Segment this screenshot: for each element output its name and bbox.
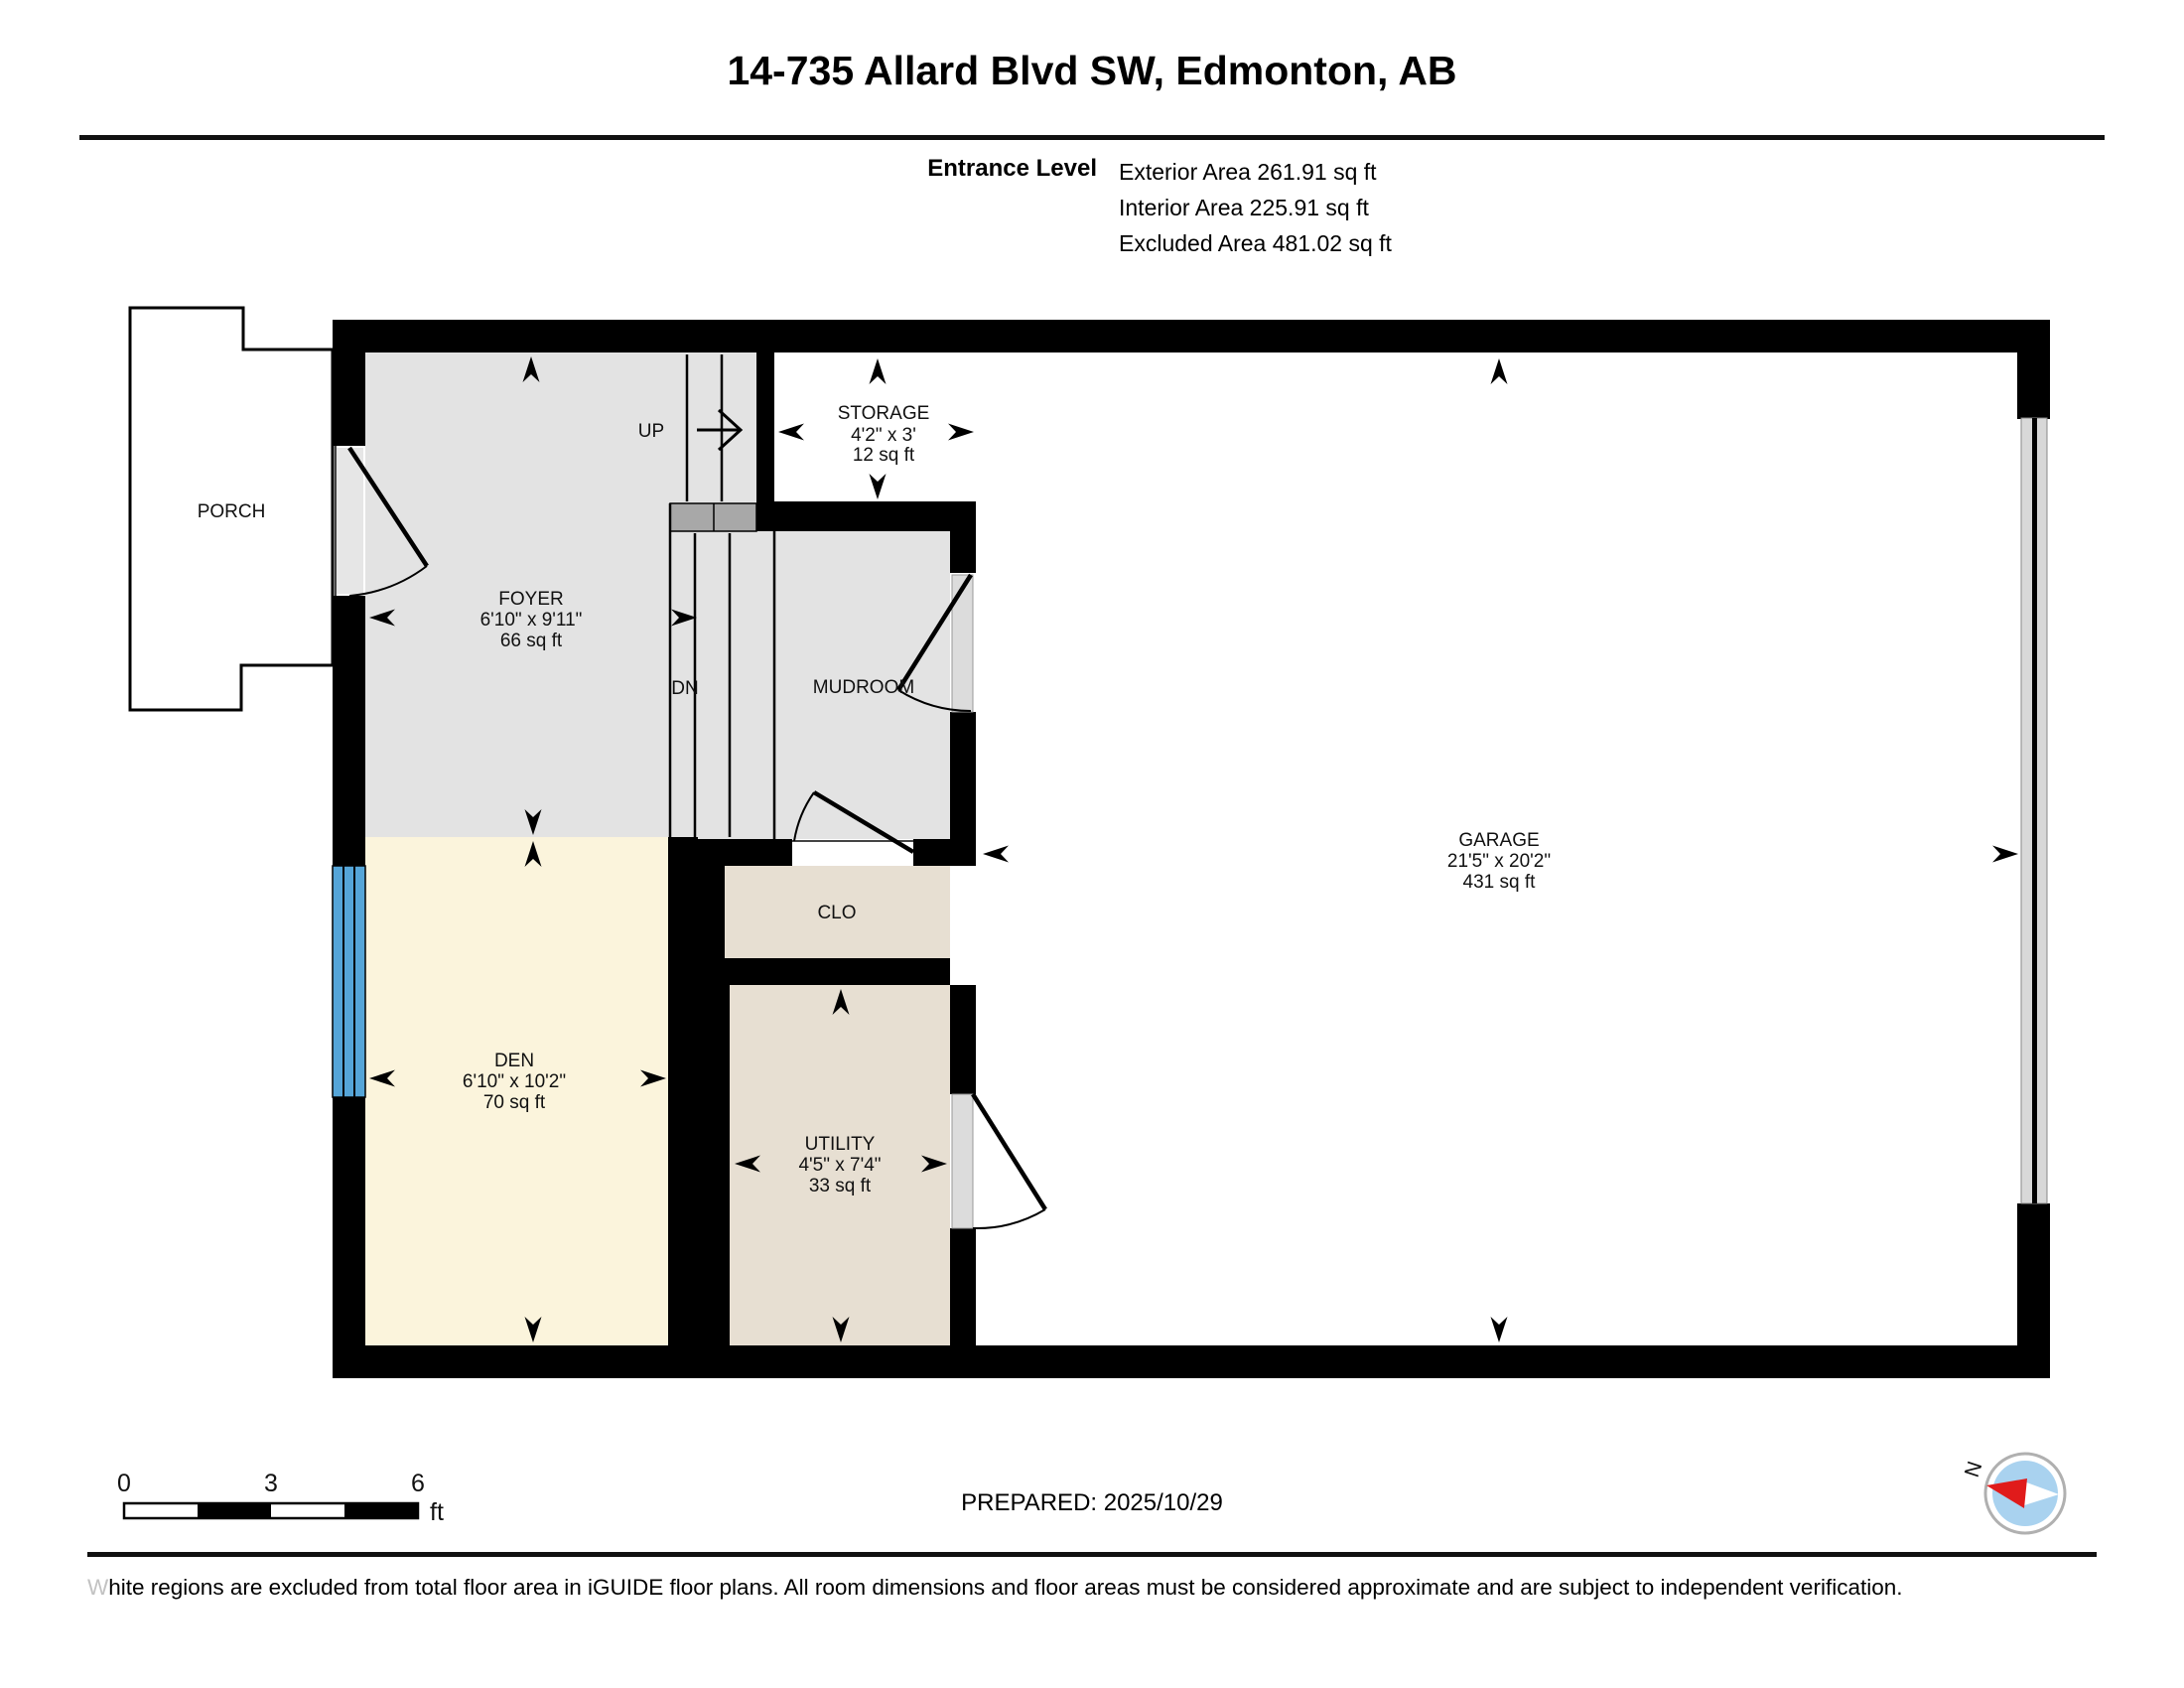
wall-left-middle bbox=[333, 596, 365, 866]
stairs-down-run bbox=[670, 503, 774, 839]
garage-area: 431 sq ft bbox=[1463, 872, 1537, 893]
wall-mudroom-bottom-left bbox=[698, 839, 792, 866]
compass-north-label: N bbox=[1961, 1459, 1987, 1480]
wall-bottom bbox=[333, 1345, 2050, 1378]
foyer-label: FOYER bbox=[498, 589, 563, 610]
wall-clo-utility bbox=[698, 958, 950, 985]
utility-dims: 4'5" x 7'4" bbox=[798, 1155, 881, 1176]
garage-dims: 21'5" x 20'2" bbox=[1447, 851, 1551, 872]
wall-mudroom-top bbox=[756, 501, 976, 531]
wall-den-right bbox=[668, 837, 698, 1345]
stairs-down-label: DN bbox=[671, 678, 698, 699]
floorplan-page: 14-735 Allard Blvd SW, Edmonton, AB Entr… bbox=[0, 0, 2184, 1688]
floorplan-canvas: PORCH FOYER 6'10" x 9'11" 66 sq ft UP DN… bbox=[0, 0, 2184, 1688]
stairs-up-run bbox=[670, 352, 756, 503]
foyer-area: 66 sq ft bbox=[500, 631, 563, 651]
footer-divider bbox=[87, 1552, 2097, 1557]
utility-label: UTILITY bbox=[805, 1134, 876, 1155]
utility-area: 33 sq ft bbox=[809, 1176, 872, 1196]
garage-door-icon bbox=[2021, 418, 2047, 1203]
wall-left-upper bbox=[333, 320, 365, 446]
wall-utility-right-upper bbox=[950, 985, 976, 1094]
storage-label: STORAGE bbox=[838, 403, 930, 424]
prepared-date: PREPARED: 2025/10/29 bbox=[0, 1489, 2184, 1517]
garage-label: GARAGE bbox=[1458, 830, 1539, 851]
wall-top bbox=[333, 320, 2050, 352]
storage-area: 12 sq ft bbox=[853, 445, 915, 466]
storage-dims: 4'2" x 3' bbox=[851, 425, 916, 446]
wall-mudroom-right-upper bbox=[950, 531, 976, 573]
utility-garage-door-icon bbox=[952, 1094, 1045, 1228]
wall-clo-left bbox=[698, 866, 725, 958]
window-icon bbox=[333, 866, 365, 1097]
wall-right-lower bbox=[2017, 1203, 2050, 1378]
wall-utility-left bbox=[698, 985, 730, 1345]
porch-label: PORCH bbox=[198, 501, 266, 522]
foyer-dims: 6'10" x 9'11" bbox=[480, 610, 583, 631]
wall-utility-right-lower bbox=[950, 1228, 976, 1345]
den-label: DEN bbox=[494, 1051, 534, 1071]
mudroom-label: MUDROOM bbox=[813, 677, 914, 698]
wall-right-upper bbox=[2017, 320, 2050, 419]
wall-left-lower bbox=[333, 1097, 365, 1378]
wall-mudroom-right-lower bbox=[950, 712, 976, 841]
stairs-up-label: UP bbox=[638, 421, 664, 442]
wall-stair-storage bbox=[756, 352, 774, 501]
den-area: 70 sq ft bbox=[483, 1092, 546, 1113]
disclaimer-text: White regions are excluded from total fl… bbox=[87, 1575, 2122, 1601]
clo-label: CLO bbox=[817, 903, 856, 923]
den-dims: 6'10" x 10'2" bbox=[463, 1071, 566, 1092]
wall-mudroom-bottom-right bbox=[913, 839, 976, 866]
